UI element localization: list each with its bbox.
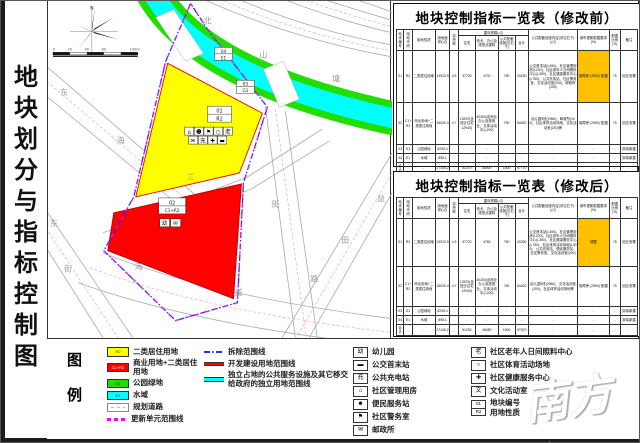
table-cell: 40300(含商业办公及旅馆业、文体活动中心200) — [475, 267, 498, 307]
table-cell: 商业用地+二类居住用地 — [412, 267, 435, 307]
table-cell: 保障房·(2962)·配建 — [578, 51, 609, 103]
svg-text:东: 东 — [50, 218, 58, 228]
table-cell: - — [412, 325, 435, 336]
legend-label: 便民服务站 — [372, 400, 410, 409]
sports-ground-icon: ○ — [216, 129, 221, 135]
table-cell: 公园绿地 — [412, 145, 435, 154]
legend-label: 公园绿地 — [133, 379, 163, 388]
table-cell: 15030.4 — [435, 103, 449, 145]
legend-label: 社区老年人日间照料中心 — [490, 348, 573, 357]
legend-label: 社区警务室 — [372, 413, 410, 422]
legend-column: 拆除范围线开发建设用地范围线独立占地的公共服务设施及其它移交给政府的独立用地范围… — [204, 347, 353, 436]
legend-item: ⚑社区警务室 — [353, 412, 471, 423]
table-cell: 1500 — [498, 325, 515, 336]
legend-item: ✉邮政所 — [353, 425, 471, 436]
table-cell: 保障房·(2960)·配建 — [578, 103, 609, 145]
community-management-icon: ⌂ — [353, 386, 368, 397]
table-cell: 4700 — [475, 51, 498, 103]
table-cell: - — [498, 145, 515, 154]
post-office-icon: ✉ — [191, 138, 196, 144]
parcel-02-code: C1+R2 — [165, 208, 180, 213]
table-cell: - — [621, 325, 638, 336]
indicator-table-after-panel: 地块控制指标一览表（修改后） 地块编号用地代码用地性质用地面积(㎡)容积率建设规… — [393, 171, 640, 337]
table-cell: - — [498, 316, 515, 325]
svg-text:三: 三 — [187, 173, 195, 182]
table-cell: - — [458, 154, 475, 163]
table-cell: E1 — [404, 154, 413, 163]
post-office-icon: ✉ — [353, 425, 368, 436]
legend-item: ✚社区健康服务中心 — [471, 373, 640, 384]
table-cell: - — [578, 145, 609, 154]
table-cell: 750 — [498, 103, 515, 145]
table-cell: 水域 — [412, 154, 435, 163]
table-cell: 拆除新建 — [621, 316, 638, 325]
north-label: N — [90, 5, 93, 11]
table-cell: 调整 — [578, 219, 609, 267]
legend-item: 更新单元范围线 — [107, 414, 204, 424]
svg-text:益: 益 — [377, 193, 385, 203]
svg-text:100m: 100m — [130, 47, 141, 51]
sheet-title-char: 指 — [14, 220, 38, 244]
svg-text:塘: 塘 — [332, 73, 340, 83]
table-cell: 03 — [397, 307, 404, 316]
legend-item: ○社区体育活动场地 — [471, 360, 640, 371]
elderly-daycare-icon: 老 — [225, 127, 231, 135]
table-cell: 拆除新建 — [621, 154, 638, 163]
table-cell: G1 — [404, 145, 413, 154]
table-cell: 750 — [498, 267, 515, 307]
table-cell: - — [515, 154, 528, 163]
kindergarten-icon: 幼 — [162, 219, 168, 227]
legend-label: 商业用地+二类居住用地 — [133, 359, 204, 376]
parcel-02-number: 02 — [169, 200, 175, 206]
table-before: 地块编号用地代码用地性质用地面积(㎡)容积率建设规模(㎡)公共配套设施内容(详见… — [394, 29, 640, 174]
table-cell: 27145.2 — [435, 325, 449, 336]
table-cell: - — [498, 154, 515, 163]
legend-caption-char: 例 — [67, 388, 82, 403]
table-cell: - — [609, 307, 621, 316]
table-cell: 13923.9 — [435, 219, 449, 267]
police-room-icon: ⚑ — [353, 412, 368, 423]
legend-item: 01R2地块编号用地性质 — [471, 399, 640, 417]
sheet-title-char: 图 — [14, 344, 38, 368]
sheet-title-vertical: 地块划分与指标控制图 — [5, 1, 47, 438]
parcel-map: 01 R2 02 C1+R2 03 G1 04 E1 ⌂ — [47, 1, 391, 338]
management-house-icon: ⌂ — [187, 129, 190, 135]
health-center-icon: ✚ — [471, 373, 486, 384]
table-cell: 回迁安置 — [621, 267, 638, 307]
svg-text:0: 0 — [53, 47, 56, 51]
planned-road-swatch — [107, 403, 129, 412]
table-cell: - — [515, 145, 528, 154]
table-cell: 回迁安置 — [621, 51, 638, 103]
table-cell: - — [404, 325, 413, 336]
table-cell: - — [578, 325, 609, 336]
bus-terminal-icon: ▬ — [220, 138, 225, 144]
table-cell: - — [475, 316, 498, 325]
parcel-01-code: R2 — [216, 117, 223, 123]
table-cell: 45080 — [475, 325, 498, 336]
table-cell: 750 — [498, 219, 515, 267]
legend-item: R2二类居住用地 — [107, 347, 204, 357]
parcel-03-code: G1 — [242, 88, 248, 93]
table-cell: 4.7 — [450, 267, 459, 307]
table-cell: - — [528, 154, 577, 163]
legend-swatch: C1+R2 — [107, 363, 129, 373]
table-cell: - — [450, 316, 459, 325]
culture-room-icon: 文 — [471, 386, 486, 397]
table-cell: - — [475, 154, 498, 163]
svg-text:道: 道 — [234, 288, 242, 298]
table-cell: - — [578, 154, 609, 163]
svg-text:海: 海 — [117, 135, 125, 145]
table-cell: 04 — [397, 154, 404, 163]
table-cell: 合计 — [397, 325, 404, 336]
table-cell: - — [498, 307, 515, 316]
table-cell: 水域 — [412, 316, 435, 325]
table-cell: C1+R2 — [404, 267, 413, 307]
table-cell: - — [450, 145, 459, 154]
table-cell: 拆除新建 — [621, 145, 638, 154]
legend-line-swatch — [107, 418, 127, 421]
table-cell: C1+R2 — [404, 103, 413, 145]
table-cell: 43150 — [515, 51, 528, 103]
table-cell: 898.1 — [435, 154, 449, 163]
police-room-icon: ⚑ — [206, 129, 211, 135]
legend-item: E1水域 — [107, 390, 204, 400]
table-cell: 13570(含回迁住宅12940) — [458, 267, 475, 307]
svg-text:20: 20 — [68, 47, 73, 51]
table-cell: 54620 — [515, 103, 528, 145]
table-cell: - — [458, 307, 475, 316]
charging-station-icon: 充 — [200, 136, 206, 144]
legend-item: ⌂社区管理用房 — [353, 386, 471, 397]
table-cell: - — [450, 307, 459, 316]
table-cell: 13570(含回迁住宅12940) — [458, 103, 475, 145]
sheet-title-char: 与 — [14, 189, 38, 213]
table-cell: 公交首末站(L450)、社区管理用房(L200)、社区老年人日间照料中心(L35… — [528, 219, 577, 267]
legend-caption: 图 例 — [67, 353, 82, 403]
legend-item: 幼幼儿园 — [353, 347, 471, 358]
parcel-04-code: E1 — [221, 55, 227, 60]
legend-item: C1+R2商业用地+二类居住用地 — [107, 359, 204, 376]
table-cell: 二类居住用地 — [412, 51, 435, 103]
charging-station-icon: 充 — [353, 373, 368, 384]
table-cell: 4.5 — [450, 51, 459, 103]
indicator-table: 地块编号用地代码用地性质用地面积(㎡)容积率建设规模(㎡)公共配套设施内容(详见… — [396, 197, 638, 336]
legend-label: 用地性质 — [490, 409, 520, 418]
legend-label: 独立占地的公共服务设施及其它移交给政府的独立用地范围线 — [228, 371, 353, 388]
table-cell: 4.7 — [450, 103, 459, 145]
table-cell: - — [578, 307, 609, 316]
legend-label: 社区管理用房 — [372, 387, 417, 396]
table-cell: 保障房·(2960)·配建 — [578, 267, 609, 307]
table-cell: 幼儿园9班(2960)、邮政所(150)、社区体育活动场地、文化活动室(200)… — [528, 103, 577, 145]
table-cell: - — [515, 316, 528, 325]
legend-swatch: R2 — [107, 347, 129, 357]
table-before-title: 地块控制指标一览表（修改前） — [394, 4, 640, 29]
legend-label: 更新单元范围线 — [131, 415, 184, 424]
bus-terminal-icon: ▬ — [353, 360, 368, 371]
table-cell: 75 — [609, 103, 621, 145]
legend-column: 幼幼儿园▬公交首末站充公共充电站⌂社区管理用房☻便民服务站⚑社区警务室✉邮政所 — [353, 347, 471, 436]
table-cell: R2 — [404, 51, 413, 103]
table-cell: 750 — [498, 51, 515, 103]
table-cell: - — [578, 316, 609, 325]
svg-text:东: 东 — [60, 87, 68, 97]
table-cell: 37720 — [458, 219, 475, 267]
table-cell: 商业用地+二类居住用地 — [412, 103, 435, 145]
table-cell: 97870 — [515, 325, 528, 336]
legend-line-swatch — [204, 362, 224, 367]
kindergarten-icon: 幼 — [353, 347, 368, 358]
legend-label: 规划道路 — [133, 403, 163, 412]
svg-text:路: 路 — [310, 274, 318, 284]
sheet-title-char: 分 — [14, 158, 38, 182]
legend-label: 拆除范围线 — [228, 348, 266, 357]
scale-bar: 0 20 40 60 100m — [53, 47, 141, 57]
legend-item: ▬公交首末站 — [353, 360, 471, 371]
legend-columns: R2二类居住用地C1+R2商业用地+二类居住用地G1公园绿地E1水域规划道路更新… — [107, 347, 640, 436]
sports-ground-icon: ○ — [471, 360, 486, 371]
legend-label: 公共充电站 — [372, 374, 410, 383]
table-cell: 4.9 — [450, 219, 459, 267]
indicator-table-before-panel: 地块控制指标一览表（修改前） 地块编号用地代码用地性质用地面积(㎡)容积率建设规… — [393, 3, 640, 167]
legend-item: 拆除范围线 — [204, 347, 353, 357]
table-cell: 02 — [397, 267, 404, 307]
legend-item: 开发建设用地范围线 — [204, 359, 353, 369]
table-cell: 回迁安置 — [621, 103, 638, 145]
parcel-04-number: 04 — [221, 49, 227, 54]
indicator-table: 地块编号用地代码用地性质用地面积(㎡)容积率建设规模(㎡)公共配套设施内容(详见… — [396, 29, 638, 174]
table-cell: - — [609, 145, 621, 154]
table-cell: - — [458, 145, 475, 154]
legend-item: 老社区老年人日间照料中心 — [471, 347, 640, 358]
table-cell: G1 — [404, 307, 413, 316]
legend-label: 公交首末站 — [372, 361, 410, 370]
legend-item: 文文化活动室 — [471, 386, 640, 397]
legend-item: 独立占地的公共服务设施及其它移交给政府的独立用地范围线 — [204, 371, 353, 388]
legend-item: ☻便民服务站 — [353, 399, 471, 410]
table-cell: 4780 — [475, 219, 498, 267]
table-cell: 公园绿地 — [412, 307, 435, 316]
planning-sheet: 地块划分与指标控制图 — [0, 0, 640, 443]
legend-panel: 图 例 R2二类居住用地C1+R2商业用地+二类居住用地G1公园绿地E1水域规划… — [47, 338, 640, 439]
sheet-title-char: 划 — [14, 127, 38, 151]
table-cell: E1 — [404, 316, 413, 325]
table-cell: - — [450, 325, 459, 336]
table-cell: - — [528, 316, 577, 325]
svg-text:街: 街 — [64, 264, 72, 274]
table-cell: 二类居住用地 — [412, 219, 435, 267]
sheet-title-char: 制 — [14, 313, 38, 337]
legend-label: 文化活动室 — [490, 387, 528, 396]
table-after-title: 地块控制指标一览表（修改后） — [394, 172, 640, 197]
table-cell: - — [528, 307, 577, 316]
legend-column: R2二类居住用地C1+R2商业用地+二类居住用地G1公园绿地E1水域规划道路更新… — [107, 347, 204, 436]
sheet-title-char: 标 — [14, 251, 38, 275]
legend-caption-char: 图 — [67, 353, 82, 368]
plot-code-swatch: 01R2 — [471, 400, 486, 416]
table-cell: - — [450, 154, 459, 163]
table-cell: 75 — [609, 267, 621, 307]
legend-label: 开发建设用地范围线 — [228, 360, 296, 369]
table-cell: 03 — [397, 145, 404, 154]
sheet-title-char: 控 — [14, 282, 38, 306]
convenience-service-icon: ☻ — [353, 399, 368, 410]
table-after: 地块编号用地代码用地性质用地面积(㎡)容积率建设规模(㎡)公共配套设施内容(详见… — [394, 197, 640, 336]
table-cell: 6235.4 — [435, 307, 449, 316]
legend-line-swatch — [204, 377, 224, 382]
legend-item: 规划道路 — [107, 402, 204, 412]
legend-label: 二类居住用地 — [133, 348, 178, 357]
table-cell: - — [528, 145, 577, 154]
table-cell: - — [609, 154, 621, 163]
legend-item: 充公共充电站 — [353, 373, 471, 384]
convenience-service-icon: ☻ — [196, 128, 202, 135]
table-cell: 54620 — [515, 267, 528, 307]
compass-rose: N — [70, 5, 118, 55]
table-cell: 回迁安置 — [621, 219, 638, 267]
table-cell: 公交首末站(L450)、社区管理用房(L200)、社区老年人日间照料中心(L35… — [528, 51, 577, 103]
table-cell: R2 — [404, 219, 413, 267]
legend-label: 邮政所 — [372, 426, 395, 435]
table-cell: - — [475, 307, 498, 316]
table-cell: 898.1 — [435, 316, 449, 325]
table-cell: - — [458, 316, 475, 325]
table-cell: - — [515, 307, 528, 316]
table-cell: 02 — [397, 103, 404, 145]
sheet-title-char: 地 — [14, 65, 38, 89]
svg-text:海: 海 — [135, 262, 143, 272]
parcel-01-number: 01 — [216, 109, 222, 115]
parcel-03-number: 03 — [243, 82, 249, 87]
table-cell: 15030.4 — [435, 267, 449, 307]
legend-label: 幼儿园 — [372, 348, 395, 357]
legend-column: 老社区老年人日间照料中心○社区体育活动场地✚社区健康服务中心文文化活动室01R2… — [471, 347, 640, 436]
post-office-icon: ✉ — [173, 221, 178, 227]
legend-label: 地块编号 — [490, 399, 520, 408]
table-cell: 幼儿园9班(2960)、文化活动室(200)、社区体育活动场地等 — [528, 267, 577, 307]
table-cell: 40300(含商业办公及旅馆业、文体活动中心200) — [475, 103, 498, 145]
legend-swatch: E1 — [107, 391, 129, 401]
table-cell: - — [528, 325, 577, 336]
table-cell: 75 — [609, 51, 621, 103]
table-cell: - — [609, 316, 621, 325]
table-cell: 拆除新建 — [621, 307, 638, 316]
table-cell: 75 — [609, 219, 621, 267]
table-cell: - — [475, 145, 498, 154]
svg-text:北: 北 — [204, 16, 212, 25]
legend-label: 社区健康服务中心 — [490, 374, 550, 383]
legend-line-swatch — [204, 351, 224, 354]
table-cell: 6235.4 — [435, 145, 449, 154]
svg-text:60: 60 — [102, 47, 107, 51]
table-cell: 43250 — [515, 219, 528, 267]
table-cell: 04 — [397, 316, 404, 325]
table-cell: 01 — [397, 51, 404, 103]
legend-label: 水域 — [133, 391, 148, 400]
sheet-title-char: 块 — [14, 96, 38, 120]
table-cell: 51290 — [458, 325, 475, 336]
map-svg: 01 R2 02 C1+R2 03 G1 04 E1 ⌂ — [48, 1, 392, 338]
table-cell: - — [609, 325, 621, 336]
svg-text:山: 山 — [259, 49, 267, 59]
svg-text:40: 40 — [85, 47, 90, 51]
table-cell: 01 — [397, 219, 404, 267]
elderly-daycare-icon: 老 — [471, 347, 486, 358]
legend-swatch: G1 — [107, 379, 129, 389]
table-cell: 13923.9 — [435, 51, 449, 103]
svg-text:街: 街 — [271, 199, 279, 209]
health-center-icon: ✚ — [210, 138, 215, 144]
table-cell: 37700 — [458, 51, 475, 103]
legend-label: 社区体育活动场地 — [490, 361, 550, 370]
legend-item: G1公园绿地 — [107, 378, 204, 388]
svg-text:田: 田 — [341, 236, 349, 245]
